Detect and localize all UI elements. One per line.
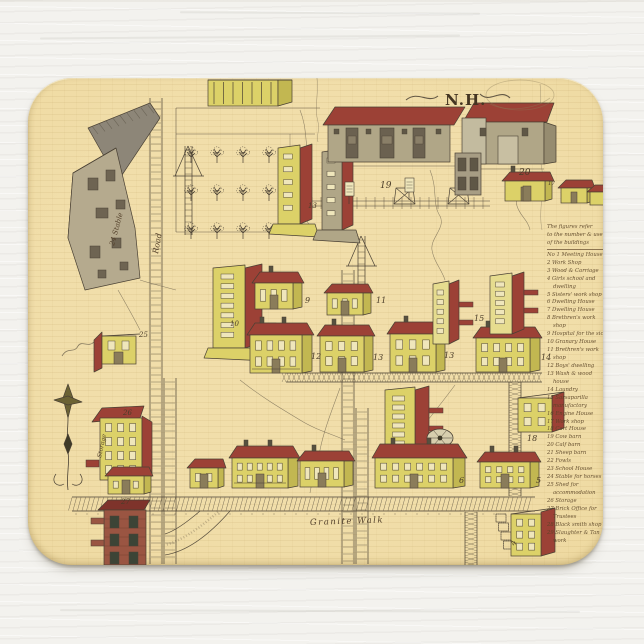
legend-item: 20 Calf barn [547,442,603,450]
product-photo: N.H.RoadGranite Walk24 StableStorage1920… [0,0,644,644]
orchard-tree [211,185,224,201]
building-number: 13 [444,351,454,360]
orchard-tree [237,185,250,201]
legend-item: 27 Brick Office for Trustees [547,506,603,522]
legend-item: No 1 Meeting House [547,252,603,260]
building-number: 25 [138,331,148,339]
legend-item: 12 Boys' dwelling [547,363,603,371]
map-legend-header: The figures referto the number & useof t… [547,224,603,250]
legend-item: 18 Cart House [547,426,603,434]
shaker-village-map-art: N.H.RoadGranite Walk24 StableStorage1920… [28,78,603,565]
legend-item: 25 Shed for accommodation [547,482,603,498]
paint-streak [40,35,460,40]
legend-item: 21 Sheep barn [547,450,603,458]
legend-item: 23 School House [547,466,603,474]
legend-item: 26 Storage [547,498,603,506]
building-number: 19 [380,181,392,191]
map-legend: The figures referto the number & useof t… [547,224,603,560]
building-number: 27 [120,498,130,506]
legend-item: 28 Black smith shop [547,522,603,530]
legend-item: 22 Fowls [547,458,603,466]
building-number: 17 [548,181,555,187]
orchard-tree [185,185,198,201]
paint-streak [180,11,480,15]
map-legend-items: No 1 Meeting House2 Work Shop3 Wood & Ca… [547,252,603,546]
orchard-tree [211,223,224,239]
building-number: 15 [474,314,484,323]
legend-item: 19 Cow barn [547,434,603,442]
legend-item: 14 Laundry [547,387,603,395]
orchard-tree [237,147,250,163]
mousepad: N.H.RoadGranite Walk24 StableStorage1920… [28,78,603,565]
legend-item: 15 Sarsaparilla manufactory [547,395,603,411]
legend-item: 16 Engine House [547,411,603,419]
legend-item: 8 Brethren's work shop [547,315,603,331]
orchard-tree [263,185,276,201]
legend-item: 4 Girls school and dwelling [547,276,603,292]
legend-item: 11 Brethren's work shop [547,347,603,363]
building-number: 13 [373,353,383,362]
building-number: 20 [518,168,531,178]
legend-item: 13 Wash & wood house [547,371,603,387]
legend-item: 7 Dwelling House [547,307,603,315]
building-number: 5 [536,476,541,485]
orchard-tree [185,223,198,239]
building-number: 12 [311,352,321,361]
orchard-tree [211,147,224,163]
legend-header-line: of the buildings [547,240,603,248]
building-number: 9 [305,296,310,305]
paint-streak [60,609,580,613]
building-number: 11 [376,296,386,305]
orchard-tree [237,223,250,239]
legend-item: 10 Granary House [547,339,603,347]
legend-item: 17 Work shop [547,419,603,427]
building-number: 18 [527,434,537,443]
building-number: 13 [308,202,317,210]
legend-item: 9 Hospital for the sick [547,331,603,339]
building-number: 26 [122,409,132,417]
legend-item: 24 Stable for horses [547,474,603,482]
building-number: 10 [230,320,239,328]
legend-item: 6 Dwelling House [547,299,603,307]
legend-item: 2 Work Shop [547,260,603,268]
legend-item: 3 Wood & Carriage [547,268,603,276]
building-number: 6 [459,476,464,485]
legend-item: 29 Slaughter & Tan work [547,530,603,546]
legend-header-line: to the number & use [547,232,603,240]
place-label: Granite Walk [310,515,385,528]
map-title: N.H. [445,91,486,109]
legend-item: 5 Sisters' work shop [547,292,603,300]
legend-header-line: The figures refer [547,224,603,232]
orchard-tree [263,147,276,163]
